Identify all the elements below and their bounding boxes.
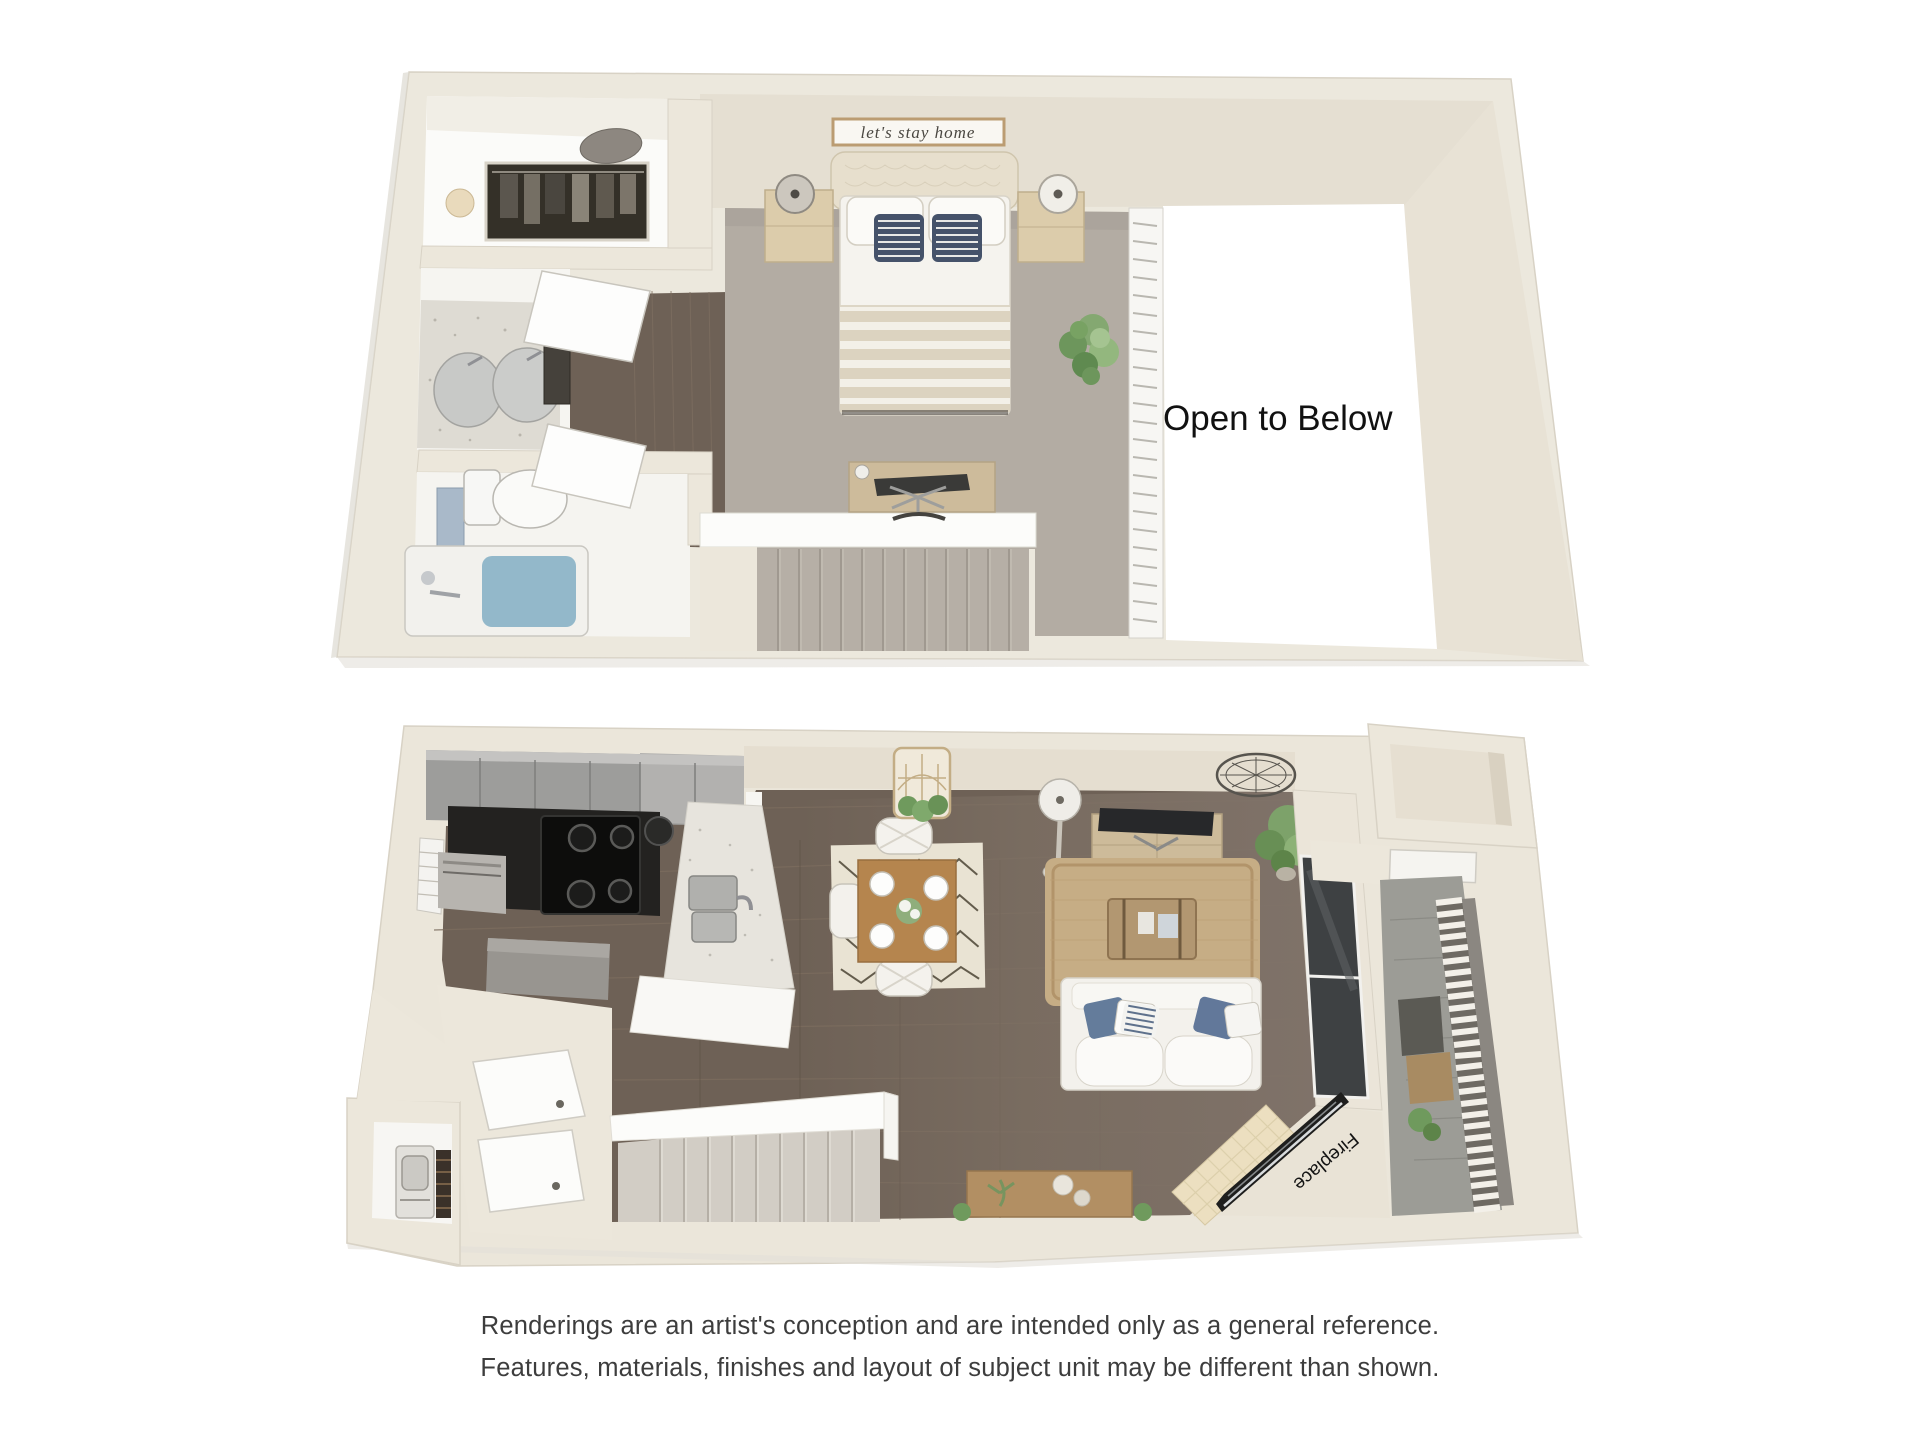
svg-text:Renderings are an artist's con: Renderings are an artist's conception an… (481, 1312, 1439, 1340)
svg-text:let's stay home: let's stay home (861, 123, 976, 142)
svg-text:Open to Below: Open to Below (1163, 399, 1393, 438)
svg-text:Features, materials, finishes: Features, materials, finishes and layout… (480, 1354, 1439, 1382)
